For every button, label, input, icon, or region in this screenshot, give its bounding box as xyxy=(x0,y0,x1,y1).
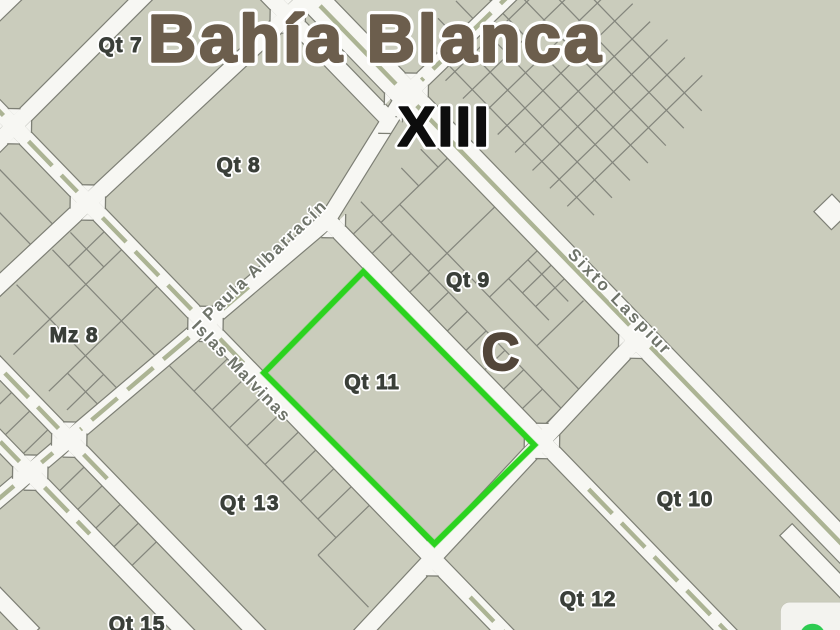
svg-text:C: C xyxy=(482,323,521,382)
svg-text:XIII: XIII xyxy=(398,95,492,159)
svg-text:Qt 7: Qt 7 xyxy=(98,34,142,57)
svg-text:Qt 13: Qt 13 xyxy=(220,492,280,515)
svg-text:Qt 10: Qt 10 xyxy=(657,488,714,511)
svg-text:Bahía Blanca: Bahía Blanca xyxy=(148,3,604,77)
svg-text:Qt 9: Qt 9 xyxy=(446,269,490,292)
svg-text:Qt 8: Qt 8 xyxy=(216,154,260,177)
svg-text:Qt 15: Qt 15 xyxy=(109,613,166,630)
svg-text:Qt 12: Qt 12 xyxy=(560,588,617,611)
svg-text:Qt 11: Qt 11 xyxy=(344,371,399,394)
svg-text:Mz 8: Mz 8 xyxy=(50,324,99,347)
